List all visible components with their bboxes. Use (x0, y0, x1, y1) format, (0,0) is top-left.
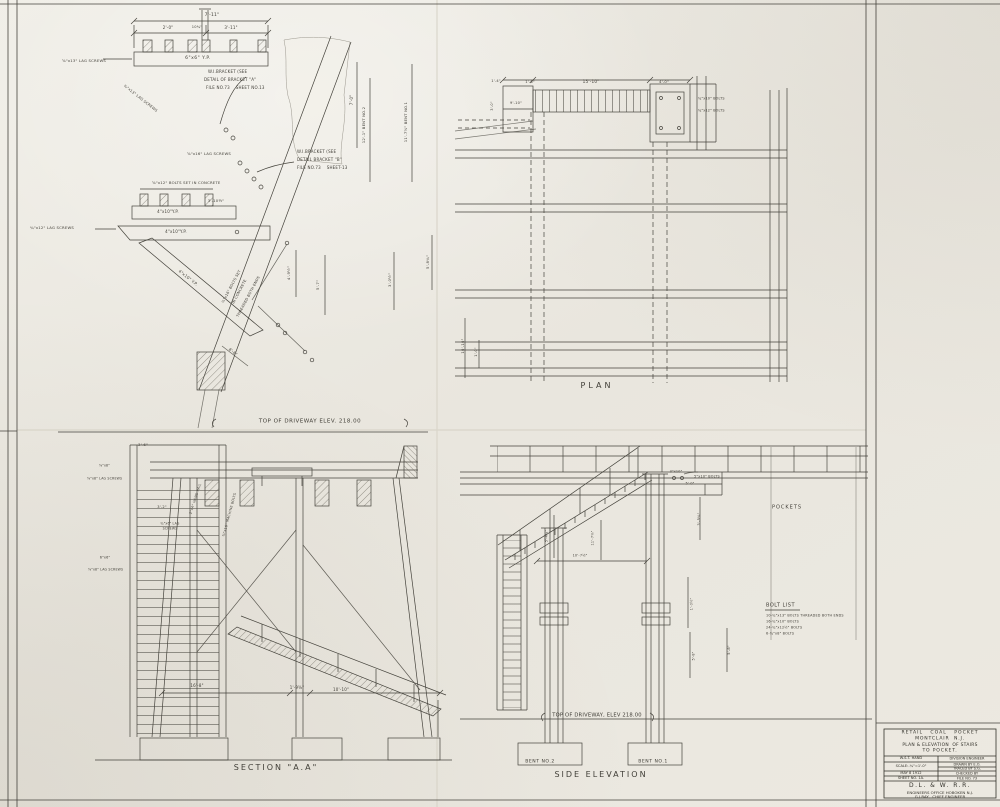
bolt-list-item: 6-¾"x8" BOLTS (766, 632, 794, 635)
note: 6"x6" (100, 556, 110, 559)
bent-no2-label: BENT NO.2 (525, 761, 555, 766)
note: ⅝"x8" LAG SCREWS (88, 568, 123, 571)
note: ⅝"x13" LAG SCREWS (62, 59, 106, 63)
dim: 4'-0" (659, 80, 669, 84)
driveway-elevation-label: TOP OF DRIVEWAY ELEV. 218.00 (259, 419, 361, 425)
title-block-hand: W.S.T. HAND (900, 757, 922, 761)
note: ¾"x16" MACHINE BOLTS (222, 493, 237, 538)
dim: 15'-10" (583, 80, 600, 84)
dim: 3'-5¾" (698, 512, 702, 525)
title-block-chief-engineer: G.J.RAY, CHIEF ENGINEER (915, 795, 965, 799)
title-block-sheet-no: SHEET NO. 1A. (898, 777, 924, 781)
plan-label: PLAN (581, 382, 614, 390)
title-block-checked-by: CHECKED BY (956, 772, 978, 776)
note: FILE NO.73 SHEET NO.13 (206, 86, 265, 90)
dim: 7'-11" (205, 14, 220, 19)
dim: 10'-10" (461, 338, 465, 353)
dim: 1'-4" (491, 80, 501, 84)
note: SCREWS (163, 527, 178, 530)
dim: 7'-0" (350, 95, 354, 105)
annotations-layer: 7'-11"2'-0"10¾"3'-11"6"x6" Y.P.⅝"x13" LA… (0, 0, 1000, 807)
dim: 2'-0" (163, 26, 173, 30)
note: 6"x6" Y.P. (185, 57, 211, 62)
note: 4"x10"Y.P. (157, 210, 179, 214)
dim: 8'-6" (228, 347, 238, 356)
dim: 3'-0½" (388, 273, 392, 287)
note: 2"x4" HAND RAIL (189, 483, 202, 515)
dim: 11'-7⅝" (591, 531, 594, 546)
note: ¾"x12" BOLTS (698, 109, 725, 112)
dim: 5'-8" (728, 645, 732, 655)
driveway-elevation-label: TOP OF DRIVEWAY, ELEV 218.00 (552, 713, 642, 718)
dim: 11'-7⅝" BENT NO.1 (404, 102, 408, 142)
note: ⅝"x8" LAG SCREWS (87, 477, 122, 480)
note: 3"x10" (670, 470, 683, 473)
title-block-project-line: MONTCLAIR N.J. (915, 738, 965, 743)
note: DETAIL OF BRACKET "A" (204, 78, 256, 82)
dim: 3'-0" (491, 101, 495, 111)
note: 4"x10" Y.P. (178, 269, 199, 286)
dim: 10'-10" (333, 688, 349, 692)
note: 5"x10" BOLTS (694, 475, 720, 478)
dim: 9'-10" (510, 102, 522, 106)
dim: 5'-8¾" (426, 255, 430, 269)
note: 4"x10"Y.P. (165, 230, 187, 234)
note: ¾"x6" LAG (160, 522, 179, 525)
bent-no1-label: BENT NO.1 (638, 761, 668, 766)
dim: 5'-0" (685, 482, 694, 485)
note: ¾"x12" LAG SCREWS (30, 226, 74, 230)
dim: 12'-1" BENT NO.2 (362, 107, 366, 143)
note: THREADED BOTH ENDS (237, 276, 262, 318)
dim: 3'-6" (138, 443, 148, 447)
dim: 10'-7½" (573, 554, 588, 557)
note: ⅝"x16" LAG SCREWS (187, 152, 231, 156)
dim: 1'-9⅝" (290, 686, 305, 690)
note: ⅝"x8" (99, 464, 110, 467)
note: ⅝"x12" BOLTS SET IN CONCRETE (152, 181, 221, 185)
side-elevation-label: SIDE ELEVATION (554, 771, 647, 779)
dim: 1'-0" (475, 347, 479, 357)
pockets-label: POCKETS (772, 506, 802, 511)
note: W.I.BRACKET (SEE (208, 70, 247, 74)
title-block-project-line: PLAN & ELEVATION OF STAIRS (902, 744, 977, 748)
note: ¾"x10" BOLTS (698, 97, 725, 100)
note: ¾"x13" LAG SCREWS (122, 85, 157, 114)
dim: 10¾" (192, 26, 203, 30)
note: DETAIL BRACKET "B" (297, 158, 342, 162)
title-block-division-engineer: DIVISION ENGINEER (950, 757, 985, 761)
dim: 5'-8" (692, 651, 695, 660)
dim: 4'-9½" (287, 266, 291, 280)
bolt-list-item: 24-¾"x12½" BOLTS (766, 626, 802, 629)
title-block: RETAIL COAL POCKET MONTCLAIR N.J. PLAN &… (884, 729, 996, 798)
dim: 3'-2" (157, 506, 167, 510)
dim: 16'-8" (190, 684, 203, 688)
title-block-project-line: TO POCKET. (922, 750, 957, 755)
title-block-project-line: RETAIL COAL POCKET (901, 732, 978, 737)
bolt-list-item: 16-¾"x10" BOLTS (766, 620, 799, 623)
bolt-list-item: 10-¾"x13" BOLTS THREADED BOTH ENDS (766, 614, 844, 617)
dim: 1'-6" (525, 81, 535, 85)
bolt-list-title: BOLT LIST (766, 604, 795, 609)
title-block-file-no: FILE NO. 73 (957, 777, 977, 781)
note: FILE NO.73 SHEET-13 (297, 166, 348, 170)
note: W.I.BRACKET (SEE (297, 150, 336, 154)
dim: 1'-0½" (690, 598, 693, 611)
title-block-scale: SCALE:-¼"=1'-0" (896, 765, 927, 769)
dim: 5'-7" (316, 280, 320, 290)
blueprint-sheet: 7'-11"2'-0"10¾"3'-11"6"x6" Y.P.⅝"x13" LA… (0, 0, 1000, 807)
title-block-railroad: D.L. & W. R.R. (909, 783, 971, 789)
dim: 3'-11" (224, 26, 237, 30)
dim: 5'-4¾" (545, 530, 548, 543)
dim: 3'-10½" (208, 199, 225, 203)
section-label: SECTION "A.A" (234, 764, 319, 772)
